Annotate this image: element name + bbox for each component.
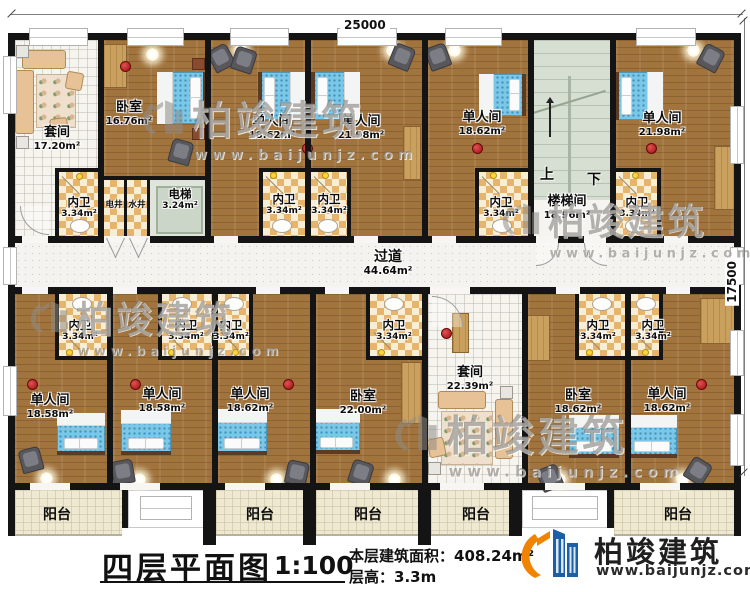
window <box>730 330 744 376</box>
shower-knob <box>270 172 277 179</box>
shower-knob <box>76 173 83 180</box>
door-gap <box>430 287 470 294</box>
door-knob <box>696 379 707 390</box>
window <box>730 414 744 466</box>
bathroom-label: 内卫3.34m² <box>311 193 347 216</box>
shower-knob <box>322 172 329 179</box>
bed <box>217 409 267 455</box>
toilet <box>592 297 612 311</box>
wall <box>259 168 263 236</box>
window <box>3 366 17 416</box>
toilet <box>625 219 645 233</box>
window <box>3 247 17 285</box>
shower-knob <box>632 172 639 179</box>
bathroom-label: 内卫3.34m² <box>619 196 655 219</box>
toilet <box>70 219 90 233</box>
balcony-door <box>545 483 585 490</box>
door-knob <box>120 61 131 72</box>
bed <box>313 409 360 454</box>
wall <box>625 294 631 483</box>
bed <box>311 72 360 120</box>
bed <box>627 415 677 458</box>
floor-height-text: 层高：3.3m <box>349 566 436 587</box>
room-label: 套间22.39m² <box>447 366 493 392</box>
toilet <box>72 297 92 311</box>
door-gap <box>354 236 378 243</box>
wall <box>147 180 150 236</box>
wall <box>205 40 211 236</box>
bathroom-label: 内卫3.34m² <box>213 319 249 342</box>
window <box>230 28 289 46</box>
bed <box>258 72 306 120</box>
room-label: 单人间18.58m² <box>27 394 73 420</box>
nightstand <box>192 128 205 140</box>
wall <box>418 490 431 545</box>
window <box>3 56 17 114</box>
wall <box>475 168 479 236</box>
room-label: 套间17.20m² <box>34 126 80 152</box>
wall <box>422 40 428 236</box>
balcony-label: 阳台 <box>43 504 71 524</box>
room-label: 单人间18.62m² <box>459 111 505 137</box>
wall <box>575 294 579 360</box>
side-table <box>16 136 29 149</box>
balcony-door <box>225 483 265 490</box>
door-gap <box>214 236 238 243</box>
plan-scale: 1:100 <box>274 551 354 580</box>
shower-knob <box>378 349 385 356</box>
side-table <box>500 386 513 399</box>
bathroom-label: 内卫3.34m² <box>580 319 616 342</box>
bathroom-label: 内卫3.34m² <box>168 319 204 342</box>
door-gap <box>432 236 456 243</box>
bed <box>569 415 619 458</box>
wall <box>158 356 253 360</box>
wall <box>122 490 128 528</box>
wall <box>100 176 208 180</box>
wall <box>422 294 428 483</box>
room-label: 单人间18.62m² <box>644 388 690 414</box>
stair-divider <box>568 76 571 200</box>
door-gap <box>113 287 137 294</box>
window <box>127 28 184 46</box>
wall <box>107 294 113 483</box>
door-knob <box>283 379 294 390</box>
stair-down-label: 下 <box>587 169 601 189</box>
bay-window <box>140 496 192 520</box>
door-gap <box>556 287 580 294</box>
shower-knob <box>642 349 649 356</box>
wall <box>347 168 351 236</box>
dimension-line-top <box>10 14 743 15</box>
door-gap <box>536 236 558 243</box>
balcony-label: 阳台 <box>664 504 692 524</box>
room-label: 单人间18.62m² <box>249 115 295 141</box>
shower-knob <box>66 349 73 356</box>
wall <box>8 490 15 536</box>
ceiling-lamp <box>146 48 159 61</box>
balcony-door <box>640 483 680 490</box>
wall <box>366 294 370 360</box>
wall <box>55 356 107 360</box>
door-gap <box>584 236 606 243</box>
toilet <box>384 297 404 311</box>
toilet <box>636 297 656 311</box>
shower-knob <box>490 172 497 179</box>
balcony-door <box>120 483 160 490</box>
wall <box>657 168 661 236</box>
window <box>636 28 696 46</box>
wall <box>124 180 127 236</box>
door-gap <box>325 287 349 294</box>
wall <box>734 490 741 536</box>
toilet <box>492 219 512 233</box>
bay-window <box>532 496 598 520</box>
wall <box>528 40 534 236</box>
room-label: 单人间21.98m² <box>639 112 685 138</box>
wall <box>305 40 311 236</box>
shower-knob <box>232 349 239 356</box>
stair-arrow <box>549 103 551 137</box>
bed <box>121 410 171 455</box>
wall <box>259 168 351 172</box>
dimension-width-label: 25000 <box>340 18 390 32</box>
sofa <box>15 70 34 134</box>
toilet <box>272 219 292 233</box>
wardrobe <box>401 362 422 424</box>
balcony-label: 阳台 <box>354 504 382 524</box>
room-label: 卧室16.76m² <box>106 101 152 127</box>
wall <box>8 483 741 490</box>
stairwell-label: 楼梯间18.96m² <box>544 195 590 221</box>
wall <box>310 294 316 483</box>
bed <box>157 72 207 124</box>
stair-up-label: 上 <box>540 164 554 184</box>
window <box>445 28 502 46</box>
floor-area-text: 本层建筑面积：408.24m² <box>349 545 534 566</box>
dimension-line-right <box>744 18 745 476</box>
room-label: 单人间18.58m² <box>139 388 185 414</box>
wall <box>158 294 162 360</box>
side-table <box>16 45 29 58</box>
door-knob <box>441 328 452 339</box>
balcony-door <box>30 483 70 490</box>
chair <box>110 458 136 485</box>
door-gap <box>256 287 280 294</box>
desk <box>403 126 421 180</box>
door-gap <box>22 236 48 243</box>
wall <box>55 168 59 236</box>
door-knob <box>472 143 483 154</box>
side-table <box>428 462 441 475</box>
room-label: 单人间18.62m² <box>227 388 273 414</box>
wall <box>610 168 661 172</box>
balcony-label: 阳台 <box>462 504 490 524</box>
door-knob <box>27 379 38 390</box>
armchair <box>65 71 85 92</box>
corridor-label: 过道44.64m² <box>364 250 413 277</box>
wall <box>55 168 100 172</box>
floor-plan: 套间17.20m² 卧室16.76m² 单人间18.62m² 单人间21.98m… <box>0 0 750 592</box>
door-gap <box>104 236 150 243</box>
shower-knob <box>586 349 593 356</box>
elevator-label: 电梯3.24m² <box>162 188 198 211</box>
door-gap <box>22 287 48 294</box>
wall <box>303 490 316 545</box>
wall <box>610 40 616 236</box>
balcony-label: 阳台 <box>246 504 274 524</box>
bathroom-label: 内卫3.34m² <box>376 319 412 342</box>
wall <box>475 168 528 172</box>
stair-arrow-tip <box>546 97 554 103</box>
toilet <box>318 219 338 233</box>
balcony-door <box>330 483 370 490</box>
toilet <box>172 297 192 311</box>
brand-url: www.baijunjz.com <box>596 563 750 579</box>
shower-knob <box>168 349 175 356</box>
door-gap <box>664 236 688 243</box>
electric-shaft-label: 电井 <box>105 198 122 210</box>
window <box>29 28 88 46</box>
sofa <box>495 399 513 459</box>
wall <box>203 490 216 545</box>
wall <box>366 356 422 360</box>
toilet <box>224 297 244 311</box>
wall <box>55 294 59 360</box>
armchair <box>426 436 447 458</box>
bathroom-label: 内卫3.34m² <box>61 196 97 219</box>
bathroom-label: 内卫3.34m² <box>266 193 302 216</box>
door-knob <box>646 143 657 154</box>
wall <box>98 40 104 236</box>
room-label: 卧室22.00m² <box>340 390 386 416</box>
brand-logo-icon <box>517 527 583 579</box>
bathroom-label: 内卫3.34m² <box>483 196 519 219</box>
wall <box>575 356 663 360</box>
title-underline <box>100 581 345 583</box>
bathroom-label: 内卫3.34m² <box>62 319 98 342</box>
window <box>730 106 744 164</box>
wall <box>522 294 528 483</box>
room-label: 卧室18.62m² <box>555 389 601 415</box>
rug <box>441 411 493 465</box>
door-gap <box>666 287 690 294</box>
nightstand <box>192 58 205 70</box>
water-shaft-label: 水井 <box>128 198 145 210</box>
room-label: 单人间21.98m² <box>338 115 384 141</box>
wall <box>607 490 614 528</box>
sofa <box>438 391 486 409</box>
wall <box>249 294 253 360</box>
balcony-door <box>440 483 484 490</box>
bathroom-label: 内卫3.34m² <box>635 319 671 342</box>
dimension-height-label: 17500 <box>725 258 739 306</box>
